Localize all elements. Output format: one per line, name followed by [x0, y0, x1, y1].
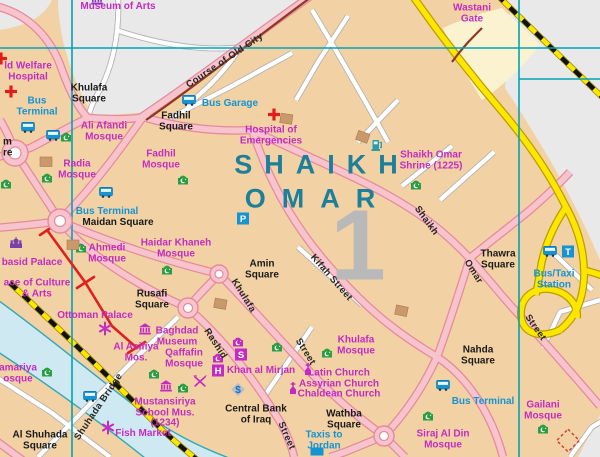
- poi-label-ali-afandi-mosque: Ali Afandi Mosque: [81, 122, 127, 143]
- poi-label-radia-mosque: Radia Mosque: [58, 160, 96, 181]
- square-label-khulafa-square: Khulafa Square: [71, 84, 108, 105]
- street-label-street: Street: [293, 337, 317, 367]
- poi-label-fadhil-mosque: Fadhil Mosque: [142, 150, 180, 171]
- square-label-m-re: m re: [3, 138, 12, 159]
- poi-label-fish-market: Fish Market: [115, 429, 171, 440]
- poi-label-qaffafin-mosque: Qaffafin Mosque: [165, 349, 203, 370]
- square-label-amin-square: Amin Square: [245, 260, 279, 281]
- transport-label-bus-taxi-station: Bus/Taxi Station: [534, 270, 575, 291]
- square-label-thawra-square: Thawra Square: [480, 250, 515, 271]
- poi-label-baghdad-museum: Baghdad Museum: [156, 327, 199, 348]
- street-label-khulafa: Khulafa: [229, 277, 257, 314]
- poi-label-mustansiriya-school-mus-1234: Mustansiriya School Mus. (1234): [134, 397, 195, 429]
- poi-label-hospital-of-emergencies: Hospital of Emergencies: [240, 126, 302, 147]
- district-number: 1: [330, 189, 386, 304]
- poi-label-ottoman-palace: Ottoman Palace: [57, 311, 133, 322]
- street-label-street: Street: [275, 421, 296, 452]
- district-name-line1: SHAIKH: [234, 150, 410, 181]
- poi-label-ace-of-culture-arts: ace of Culture & Arts: [4, 279, 71, 300]
- poi-label-wastani-gate: Wastani Gate: [453, 4, 491, 25]
- street-label-street: Street: [523, 313, 548, 343]
- poi-label-basid-palace: basid Palace: [2, 258, 63, 269]
- poi-label-amariya-osque: amariya osque: [0, 364, 37, 385]
- square-label-central-bank-of-iraq: Central Bank of Iraq: [225, 405, 287, 426]
- square-label-maidan-square: Maidan Square: [82, 218, 153, 229]
- square-label-rusafi-square: Rusafi Square: [135, 290, 169, 311]
- transport-label-bus-terminal: Bus Terminal: [76, 207, 139, 218]
- square-label-al-shuhada-square: Al Shuhada Square: [12, 431, 67, 452]
- labels-layer: Khulafa SquareFadhil SquareMaidan Square…: [0, 0, 600, 457]
- street-label-shaikh: Shaikh: [412, 204, 440, 237]
- poi-label-latin-church-assyrian-church-c: Latin Church Assyrian Church Chaldean Ch…: [298, 368, 381, 400]
- poi-label-khulafa-mosque: Khulafa Mosque: [337, 336, 375, 357]
- street-label-rashid: Rashid: [202, 327, 229, 361]
- poi-label-haidar-khaneh-mosque: Haidar Khaneh Mosque: [141, 239, 212, 260]
- street-label-course-of-old-city: Course of Old City: [185, 32, 266, 91]
- poi-label-siraj-al-din-mosque: Siraj Al Din Mosque: [417, 430, 470, 451]
- poi-label-museum-of-arts: Museum of Arts: [80, 2, 155, 13]
- poi-label-ahmedi-mosque: Ahmedi Mosque: [88, 244, 126, 265]
- square-label-fadhil-square: Fadhil Square: [159, 112, 193, 133]
- street-label-omar: Omar: [462, 258, 484, 286]
- transport-label-taxis-to-jordan: Taxis to Jordan: [305, 431, 342, 452]
- street-label-shuhada-bridge: Shuhada Bridge: [73, 372, 125, 443]
- poi-label-gailani-mosque: Gailani Mosque: [524, 401, 562, 422]
- square-label-wathba-square: Wathba Square: [326, 410, 362, 431]
- poi-label-ld-welfare-hospital: ld Welfare Hospital: [4, 62, 52, 83]
- square-label-nahda-square: Nahda Square: [461, 346, 495, 367]
- poi-label-al-asifiya-mos: Al Asifiya Mos.: [113, 343, 158, 364]
- transport-label-bus-terminal: Bus Terminal: [17, 97, 58, 118]
- poi-label-khan-al-mirjan: Khan al Mirjan: [227, 366, 295, 377]
- transport-label-bus-garage: Bus Garage: [202, 99, 258, 110]
- map-canvas[interactable]: TPHS$ Khulafa SquareFadhil SquareMaidan …: [0, 0, 600, 457]
- transport-label-bus-terminal: Bus Terminal: [452, 397, 515, 408]
